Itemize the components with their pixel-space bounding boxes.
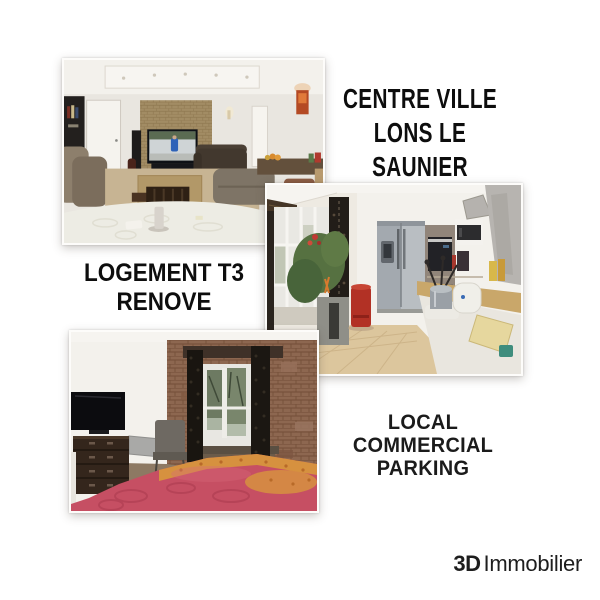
local-line2: PARKING bbox=[318, 457, 529, 480]
agency-logo: 3DImmobilier bbox=[420, 551, 582, 577]
agency-logo-prefix: 3D bbox=[453, 551, 480, 576]
headline-caption: CENTRE VILLE LONS LE SAUNIER bbox=[337, 82, 503, 184]
logement-caption: LOGEMENT T3 RENOVE bbox=[69, 259, 260, 317]
headline-line1: CENTRE VILLE bbox=[337, 82, 503, 116]
collage-canvas: CENTRE VILLE LONS LE SAUNIER LOGEMENT T3… bbox=[0, 0, 600, 600]
bedroom-illustration bbox=[71, 332, 317, 511]
logement-line2: RENOVE bbox=[69, 288, 260, 317]
bedroom-photo bbox=[69, 330, 319, 513]
logement-line1: LOGEMENT T3 bbox=[69, 259, 260, 288]
headline-line2: LONS LE SAUNIER bbox=[337, 116, 503, 184]
local-line1: LOCAL COMMERCIAL bbox=[318, 411, 529, 457]
local-commercial-caption: LOCAL COMMERCIAL PARKING bbox=[318, 411, 529, 480]
agency-logo-name: Immobilier bbox=[484, 551, 582, 576]
